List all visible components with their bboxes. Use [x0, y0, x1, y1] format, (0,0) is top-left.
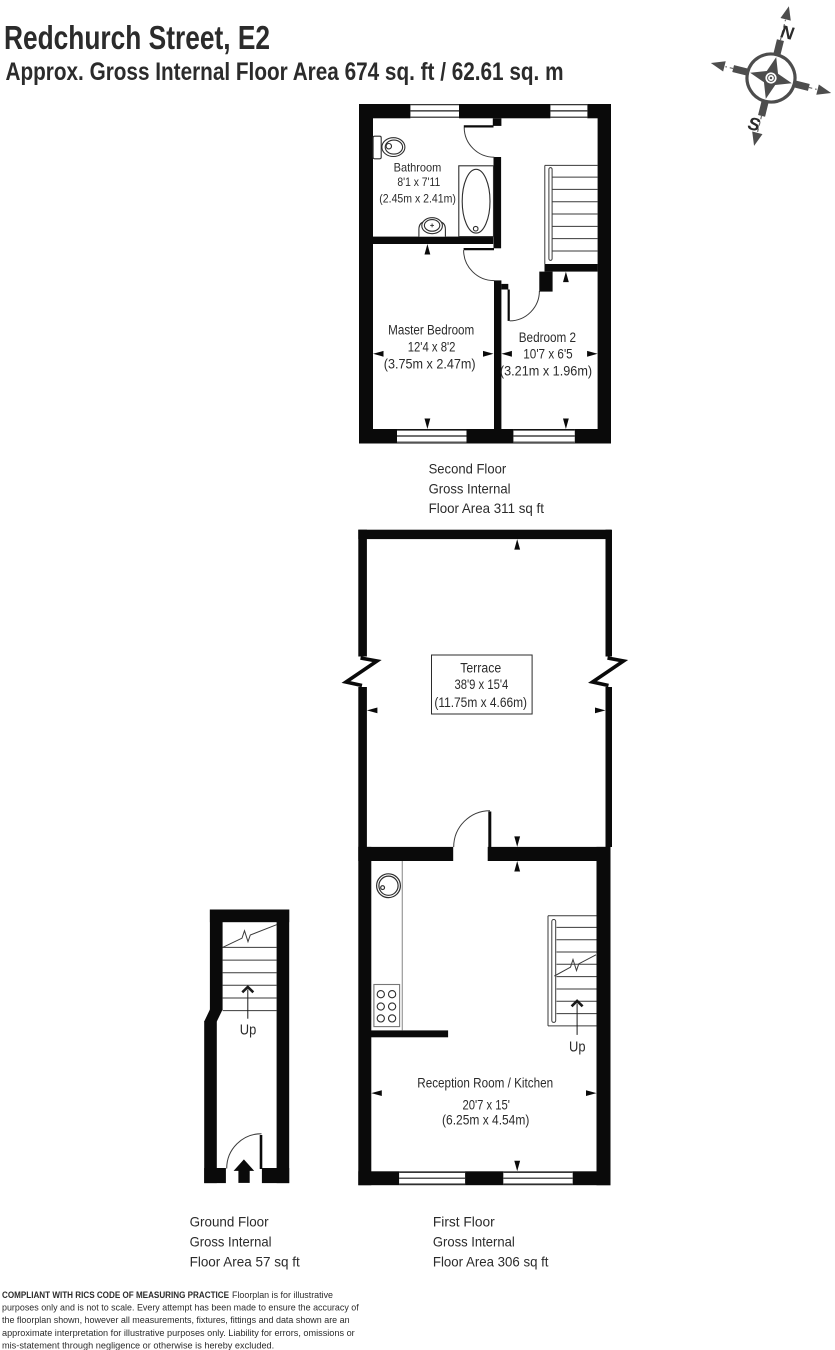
svg-text:(2.45m x 2.41m): (2.45m x 2.41m) [379, 192, 456, 206]
svg-text:Terrace: Terrace [460, 660, 501, 675]
svg-text:38'9 x 15'4: 38'9 x 15'4 [454, 677, 508, 692]
svg-text:Up: Up [240, 1023, 257, 1039]
svg-text:Floor Area 311 sq ft: Floor Area 311 sq ft [429, 500, 544, 516]
svg-text:mis-statement through negligen: mis-statement through negligence or othe… [2, 1340, 274, 1350]
svg-text:approximate interpretation for: approximate interpretation for illustrat… [2, 1328, 355, 1339]
svg-text:12'4 x 8'2: 12'4 x 8'2 [408, 340, 456, 355]
svg-text:Redchurch Street, E2: Redchurch Street, E2 [4, 19, 270, 56]
svg-text:the floorplan shown, however a: the floorplan shown, however all measure… [2, 1315, 350, 1326]
svg-text:Reception Room / Kitchen: Reception Room / Kitchen [417, 1076, 553, 1091]
svg-text:Master Bedroom: Master Bedroom [388, 323, 474, 338]
svg-text:Bathroom: Bathroom [394, 161, 442, 175]
svg-text:Bedroom 2: Bedroom 2 [519, 330, 576, 345]
svg-text:Gross Internal: Gross Internal [190, 1234, 272, 1250]
svg-text:20'7 x 15': 20'7 x 15' [462, 1098, 510, 1113]
svg-text:Second Floor: Second Floor [429, 460, 507, 476]
svg-text:8'1 x 7'11: 8'1 x 7'11 [397, 175, 440, 189]
svg-text:Gross Internal: Gross Internal [429, 481, 511, 497]
svg-text:(6.25m x 4.54m): (6.25m x 4.54m) [442, 1113, 529, 1128]
svg-text:Ground Floor: Ground Floor [190, 1214, 269, 1230]
svg-text:(3.21m x 1.96m): (3.21m x 1.96m) [500, 364, 592, 379]
svg-text:Approx. Gross Internal Floor A: Approx. Gross Internal Floor Area 674 sq… [6, 58, 564, 86]
svg-text:Floor Area 306 sq ft: Floor Area 306 sq ft [433, 1253, 549, 1269]
svg-text:(3.75m x 2.47m): (3.75m x 2.47m) [384, 357, 476, 372]
svg-text:Up: Up [569, 1040, 586, 1056]
svg-text:10'7 x 6'5: 10'7 x 6'5 [523, 347, 572, 362]
svg-text:First Floor: First Floor [433, 1214, 495, 1230]
svg-text:Gross Internal: Gross Internal [433, 1234, 515, 1250]
svg-text:COMPLIANT WITH RICS CODE OF ME: COMPLIANT WITH RICS CODE OF MEASURING PR… [2, 1290, 333, 1301]
svg-text:(11.75m x 4.66m): (11.75m x 4.66m) [434, 695, 527, 710]
svg-text:purposes only and is not to sc: purposes only and is not to scale. Every… [2, 1303, 359, 1314]
svg-text:Floor Area 57 sq ft: Floor Area 57 sq ft [190, 1253, 300, 1269]
